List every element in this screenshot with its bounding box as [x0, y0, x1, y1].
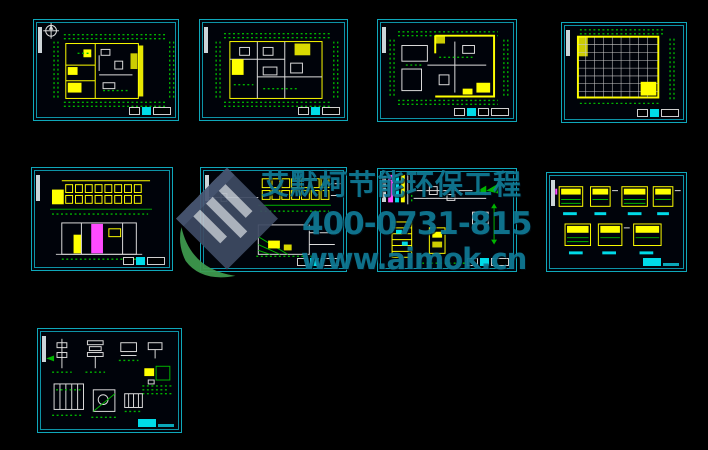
sheet-binding-tab: [382, 176, 386, 202]
elevation-section-1-drawing: [32, 168, 172, 270]
title-block: [123, 257, 165, 265]
title-block: [643, 258, 679, 266]
title-block: [297, 258, 339, 266]
sheet-binding-tab: [204, 27, 208, 53]
sheet-floor-plan-2: [199, 19, 348, 121]
title-block: [637, 109, 679, 117]
ceiling-grid-drawing: [562, 23, 686, 122]
floor-plan-3-drawing: [378, 20, 516, 121]
section-drawing: [256, 225, 338, 256]
cad-collage-canvas: 艾默柯节能环保工程 400-0731-815 www.aimok.cn: [0, 0, 708, 450]
sheet-binding-tab: [566, 30, 570, 56]
sheet-stair-detail: [377, 168, 517, 272]
stair-ladder: [392, 222, 445, 257]
sheet-ceiling-grid-plan: [561, 22, 687, 123]
detail-box-small-2: [148, 343, 162, 359]
sheet-binding-tab: [38, 27, 42, 53]
detail-blocks-top-row: [555, 187, 680, 215]
sheet-misc-details: [37, 328, 182, 433]
elevation-windows: [209, 179, 340, 211]
misc-details-drawing: [38, 329, 181, 432]
title-block: [467, 258, 509, 266]
sheet-binding-tab: [205, 175, 209, 201]
dimension-strings: [580, 30, 674, 104]
sheet-elevation-section-1: [31, 167, 173, 271]
title-block: [454, 108, 509, 116]
floor-plan-2-drawing: [200, 20, 347, 120]
floor-plan-1-drawing: [34, 20, 178, 120]
plan-walls: [230, 42, 322, 99]
shaft-strips: [388, 175, 412, 204]
sheet-node-details: [546, 172, 687, 272]
title-block: [298, 107, 340, 115]
detail-flange-stack: [85, 341, 105, 372]
section-drawing: [56, 223, 142, 259]
detail-blocks-bottom-row: [565, 224, 661, 254]
sheet-binding-tab: [382, 27, 386, 53]
plan-walls: [402, 36, 494, 97]
detail-box-small-1: [119, 343, 139, 361]
detail-yellow-green-node: [142, 366, 173, 393]
dimension-strings: [390, 32, 508, 105]
sheet-floor-plan-3: [377, 19, 517, 122]
detail-grille: [125, 394, 143, 412]
detail-valve-assembly: [91, 390, 117, 417]
sheet-elevation-section-2: [200, 167, 347, 272]
title-block: [129, 107, 171, 115]
elevation-section-2-drawing: [201, 168, 346, 271]
detail-cabinet: [52, 384, 83, 415]
piping-lines: [414, 184, 498, 201]
sheet-binding-tab: [36, 175, 40, 201]
sheet-binding-tab: [42, 336, 46, 362]
elevation-windows: [50, 181, 152, 214]
title-block: [138, 419, 174, 427]
sheet-floor-plan-1: [33, 19, 179, 121]
ceiling-grid: [578, 37, 658, 98]
node-details-drawing: [547, 173, 686, 271]
stair-detail-drawing: [378, 169, 516, 271]
sheet-binding-tab: [551, 180, 555, 206]
north-compass-icon: [43, 23, 59, 39]
detail-pipe-riser: [46, 339, 72, 372]
